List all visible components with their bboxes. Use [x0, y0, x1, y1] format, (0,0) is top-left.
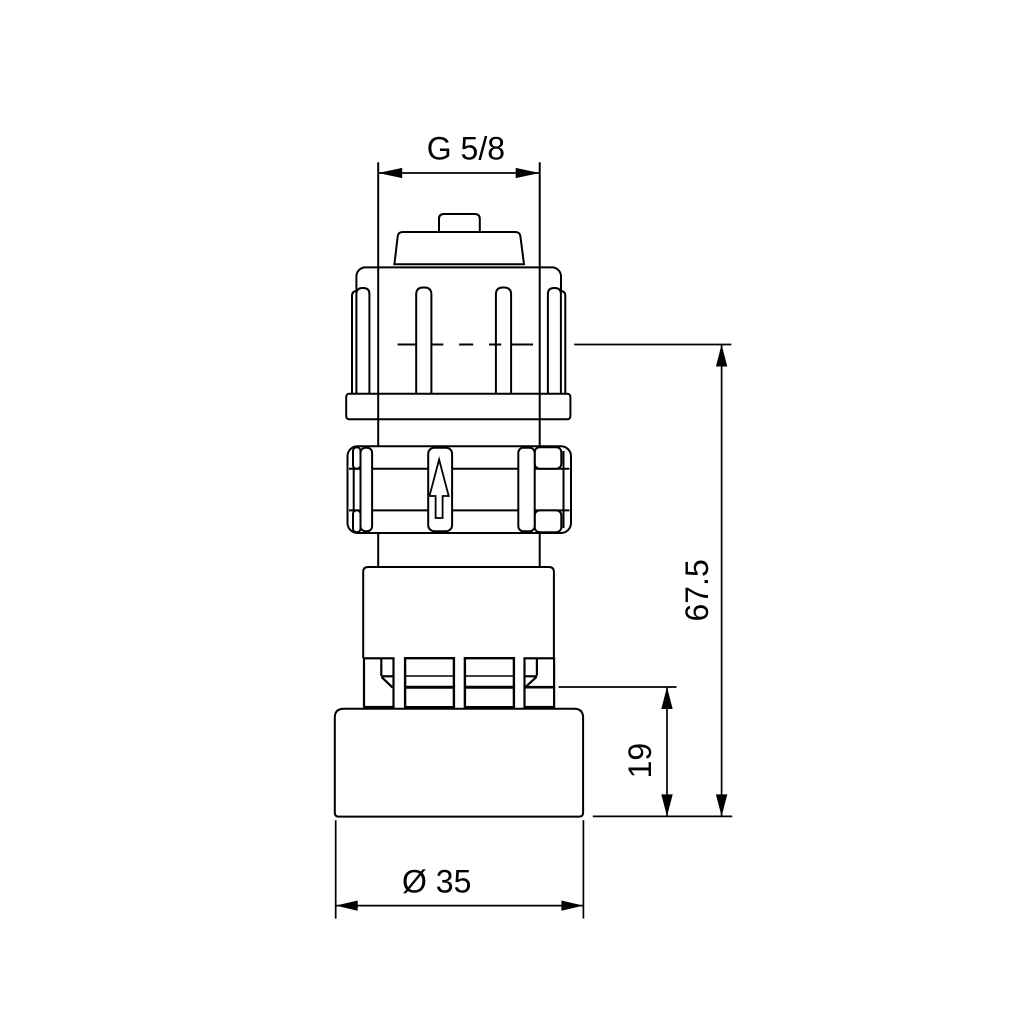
- svg-text:G 5/8: G 5/8: [427, 131, 505, 167]
- svg-text:67.5: 67.5: [679, 559, 715, 621]
- svg-text:19: 19: [622, 743, 658, 779]
- svg-text:Ø 35: Ø 35: [402, 864, 471, 900]
